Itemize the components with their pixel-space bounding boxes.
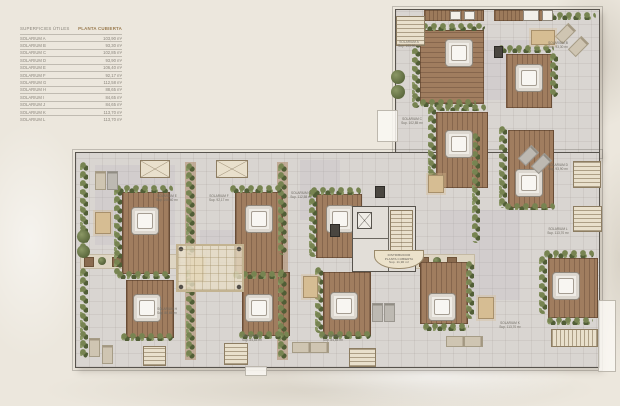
hot-tub xyxy=(445,39,473,67)
planter-box xyxy=(84,257,94,267)
hedge xyxy=(309,189,317,257)
hot-tub-basin xyxy=(521,70,537,86)
solarium-area: 88,65 m² xyxy=(105,87,122,92)
hedge xyxy=(428,106,436,178)
sun-lounger xyxy=(107,171,118,190)
hedge xyxy=(505,203,555,210)
solarium-area: 106,40 m² xyxy=(103,65,122,70)
solarium-area: 92,17 m² xyxy=(105,73,122,78)
hedge xyxy=(319,331,371,339)
solarium-area: 112,58 m² xyxy=(103,80,122,85)
sun-lounger xyxy=(95,171,106,190)
hedge xyxy=(539,256,547,314)
solarium-area: 84,65 m² xyxy=(105,102,122,107)
solarium-name: SOLARIUM J xyxy=(20,102,45,107)
hedge xyxy=(230,185,282,193)
hot-tub-basin xyxy=(251,300,267,316)
hedge xyxy=(80,268,88,358)
stairs xyxy=(396,16,425,46)
planter-box xyxy=(98,257,106,265)
distributor-label-line3: Sup. 11,90 m² xyxy=(389,261,409,264)
hedge xyxy=(278,163,287,255)
hedge xyxy=(547,317,593,325)
roof-unit xyxy=(450,11,461,20)
surface-table-subtitle: PLANTA CUBIERTA xyxy=(78,26,122,31)
surface-table-row: SOLARIUM B93,30 m² xyxy=(20,41,122,48)
hedge xyxy=(466,261,474,319)
stairs xyxy=(551,329,598,347)
solarium-name: SOLARIUM B xyxy=(20,43,46,48)
stairs xyxy=(143,346,166,366)
hedge xyxy=(499,126,507,208)
roof-unit xyxy=(542,10,553,21)
surface-table-title: SUPERFICIES ÚTILES xyxy=(20,26,69,31)
hot-tub-basin xyxy=(451,136,467,152)
surface-table-row: SOLARIUM C102,85 m² xyxy=(20,49,122,56)
solarium-name: SOLARIUM F xyxy=(20,73,46,78)
hot-tub xyxy=(515,64,543,92)
pergola xyxy=(176,244,244,292)
surface-table-row: SOLARIUM J84,65 m² xyxy=(20,101,122,108)
surface-table-row: SOLARIUM G112,58 m² xyxy=(20,78,122,85)
dining-table xyxy=(303,276,318,298)
hedge xyxy=(117,271,171,279)
dining-table xyxy=(428,175,444,193)
solarium-area: 102,85 m² xyxy=(103,50,122,55)
stair-bulkhead xyxy=(216,160,248,178)
stairs xyxy=(224,343,248,365)
solarium-area: 103,90 m² xyxy=(103,36,122,41)
roof-unit xyxy=(464,11,475,20)
hot-tub-basin xyxy=(139,300,155,316)
annex-outline xyxy=(377,110,398,142)
service-box xyxy=(330,224,340,237)
stairs xyxy=(349,348,376,367)
hot-tub-basin xyxy=(336,298,352,314)
hot-tub-basin xyxy=(521,175,537,191)
hedge xyxy=(472,133,480,243)
hot-tub xyxy=(133,294,161,322)
hot-tub-basin xyxy=(137,213,153,229)
surface-table-row: SOLARIUM H88,65 m² xyxy=(20,86,122,93)
hot-tub xyxy=(552,272,580,300)
solarium-name: SOLARIUM H xyxy=(20,87,46,92)
surface-table: SUPERFICIES ÚTILES PLANTA CUBIERTA SOLAR… xyxy=(20,26,122,123)
elevator xyxy=(357,212,372,229)
hedge xyxy=(436,104,486,111)
roof-unit xyxy=(523,10,539,21)
roof-plan-drawing: SUPERFICIES ÚTILES PLANTA CUBIERTA SOLAR… xyxy=(0,0,620,406)
surface-table-row: SOLARIUM L113,70 m² xyxy=(20,115,122,122)
tree xyxy=(391,70,405,84)
surface-table-row: SOLARIUM F92,17 m² xyxy=(20,71,122,78)
service-box xyxy=(494,46,503,58)
dining-table xyxy=(95,212,111,234)
tree xyxy=(77,245,90,258)
hedge xyxy=(498,45,554,53)
hot-tub xyxy=(245,205,273,233)
surface-table-header: SUPERFICIES ÚTILES PLANTA CUBIERTA xyxy=(20,26,122,31)
sun-lounger xyxy=(384,303,395,322)
hedge xyxy=(121,333,173,341)
solarium-name: SOLARIUM C xyxy=(20,50,46,55)
service-box xyxy=(375,186,385,198)
tree xyxy=(391,85,405,99)
hedge xyxy=(239,331,289,339)
surface-table-row: SOLARIUM I84,65 m² xyxy=(20,93,122,100)
solarium-area: 113,70 m² xyxy=(103,110,122,115)
stair-bulkhead xyxy=(140,160,170,178)
hedge xyxy=(186,163,195,255)
sun-lounger xyxy=(310,342,329,353)
hot-tub xyxy=(428,293,456,321)
hedge xyxy=(548,12,596,20)
solarium-name: SOLARIUM K xyxy=(20,110,46,115)
solarium-area: 113,70 m² xyxy=(103,117,122,122)
solarium-name: SOLARIUM E xyxy=(20,65,46,70)
hot-tub-basin xyxy=(251,211,267,227)
hedge xyxy=(115,185,173,193)
sun-lounger xyxy=(102,345,113,364)
sun-lounger xyxy=(292,342,311,353)
hedge xyxy=(544,250,594,258)
annex-outline xyxy=(245,366,267,376)
solarium-name: SOLARIUM I xyxy=(20,95,44,100)
solarium-area: 93,30 m² xyxy=(105,43,122,48)
hedge xyxy=(278,269,287,359)
sun-lounger xyxy=(372,303,383,322)
surface-table-row: SOLARIUM K113,70 m² xyxy=(20,108,122,115)
hot-tub-basin xyxy=(558,278,574,294)
hedge xyxy=(114,187,122,275)
solarium-name: SOLARIUM A xyxy=(20,36,46,41)
sun-lounger xyxy=(446,336,465,347)
annex-outline xyxy=(598,300,616,372)
sun-lounger xyxy=(89,338,100,357)
solarium-name: SOLARIUM D xyxy=(20,58,46,63)
hot-tub-basin xyxy=(434,299,450,315)
hot-tub xyxy=(445,130,473,158)
solarium-area: 84,65 m² xyxy=(105,95,122,100)
surface-table-row: SOLARIUM D93,90 m² xyxy=(20,56,122,63)
stairs xyxy=(573,206,602,232)
stairs xyxy=(573,161,601,188)
dining-table xyxy=(531,30,555,45)
surface-table-rows: SOLARIUM A103,90 m²SOLARIUM B93,30 m²SOL… xyxy=(20,34,122,123)
core-wall xyxy=(353,238,388,239)
solarium-name: SOLARIUM G xyxy=(20,80,46,85)
hot-tub-basin xyxy=(451,45,467,61)
surface-table-row: SOLARIUM A103,90 m² xyxy=(20,34,122,41)
dining-table xyxy=(478,297,494,319)
solarium-name: SOLARIUM L xyxy=(20,117,45,122)
hot-tub xyxy=(330,292,358,320)
hot-tub xyxy=(131,207,159,235)
tree xyxy=(77,230,90,243)
hedge xyxy=(423,323,469,331)
sun-lounger xyxy=(464,336,483,347)
hedge xyxy=(550,53,558,97)
solarium-area: 93,90 m² xyxy=(105,58,122,63)
hedge xyxy=(311,187,361,195)
hot-tub xyxy=(245,294,273,322)
surface-table-row: SOLARIUM E106,40 m² xyxy=(20,64,122,71)
